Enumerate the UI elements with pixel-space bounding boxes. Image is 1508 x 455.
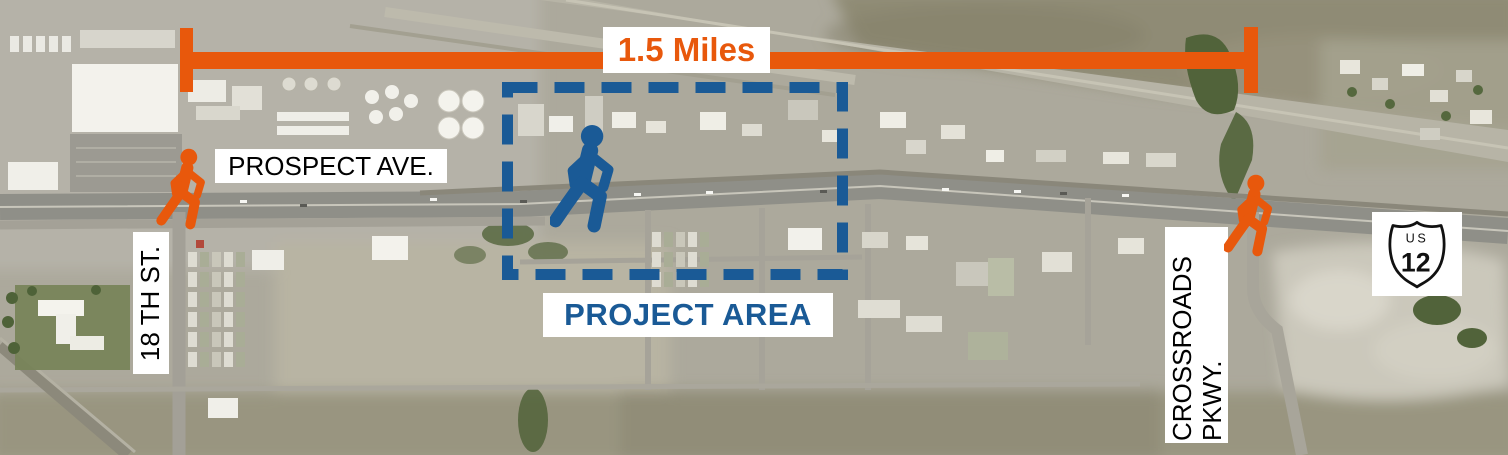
pedestrian-icon xyxy=(156,148,214,232)
scale-bar-right-cap xyxy=(1244,27,1258,93)
route-shield-number: 12 xyxy=(1401,248,1431,278)
prospect-ave-label: PROSPECT AVE. xyxy=(215,149,447,183)
aerial-map-figure: 1.5 Miles PROSPECT AVE. 18 TH ST. PROJEC… xyxy=(0,0,1508,455)
route-shield-system: US xyxy=(1406,232,1429,246)
scale-distance-label: 1.5 Miles xyxy=(603,27,770,73)
eighteenth-st-label: 18 TH ST. xyxy=(133,232,169,374)
crossroads-pkwy-label: CROSSROADS PKWY. xyxy=(1165,227,1228,443)
scale-bar-left-cap xyxy=(180,28,193,92)
project-area-label: PROJECT AREA xyxy=(543,293,833,337)
pedestrian-icon xyxy=(550,124,624,236)
eighteenth-st-label-text: 18 TH ST. xyxy=(136,245,167,360)
crossroads-line2: PKWY. xyxy=(1197,229,1227,441)
crossroads-pkwy-label-text: CROSSROADS PKWY. xyxy=(1167,229,1227,441)
us-12-route-shield-icon: US 12 xyxy=(1372,212,1462,296)
crossroads-line1: CROSSROADS xyxy=(1167,229,1197,441)
pedestrian-icon xyxy=(1224,174,1280,259)
